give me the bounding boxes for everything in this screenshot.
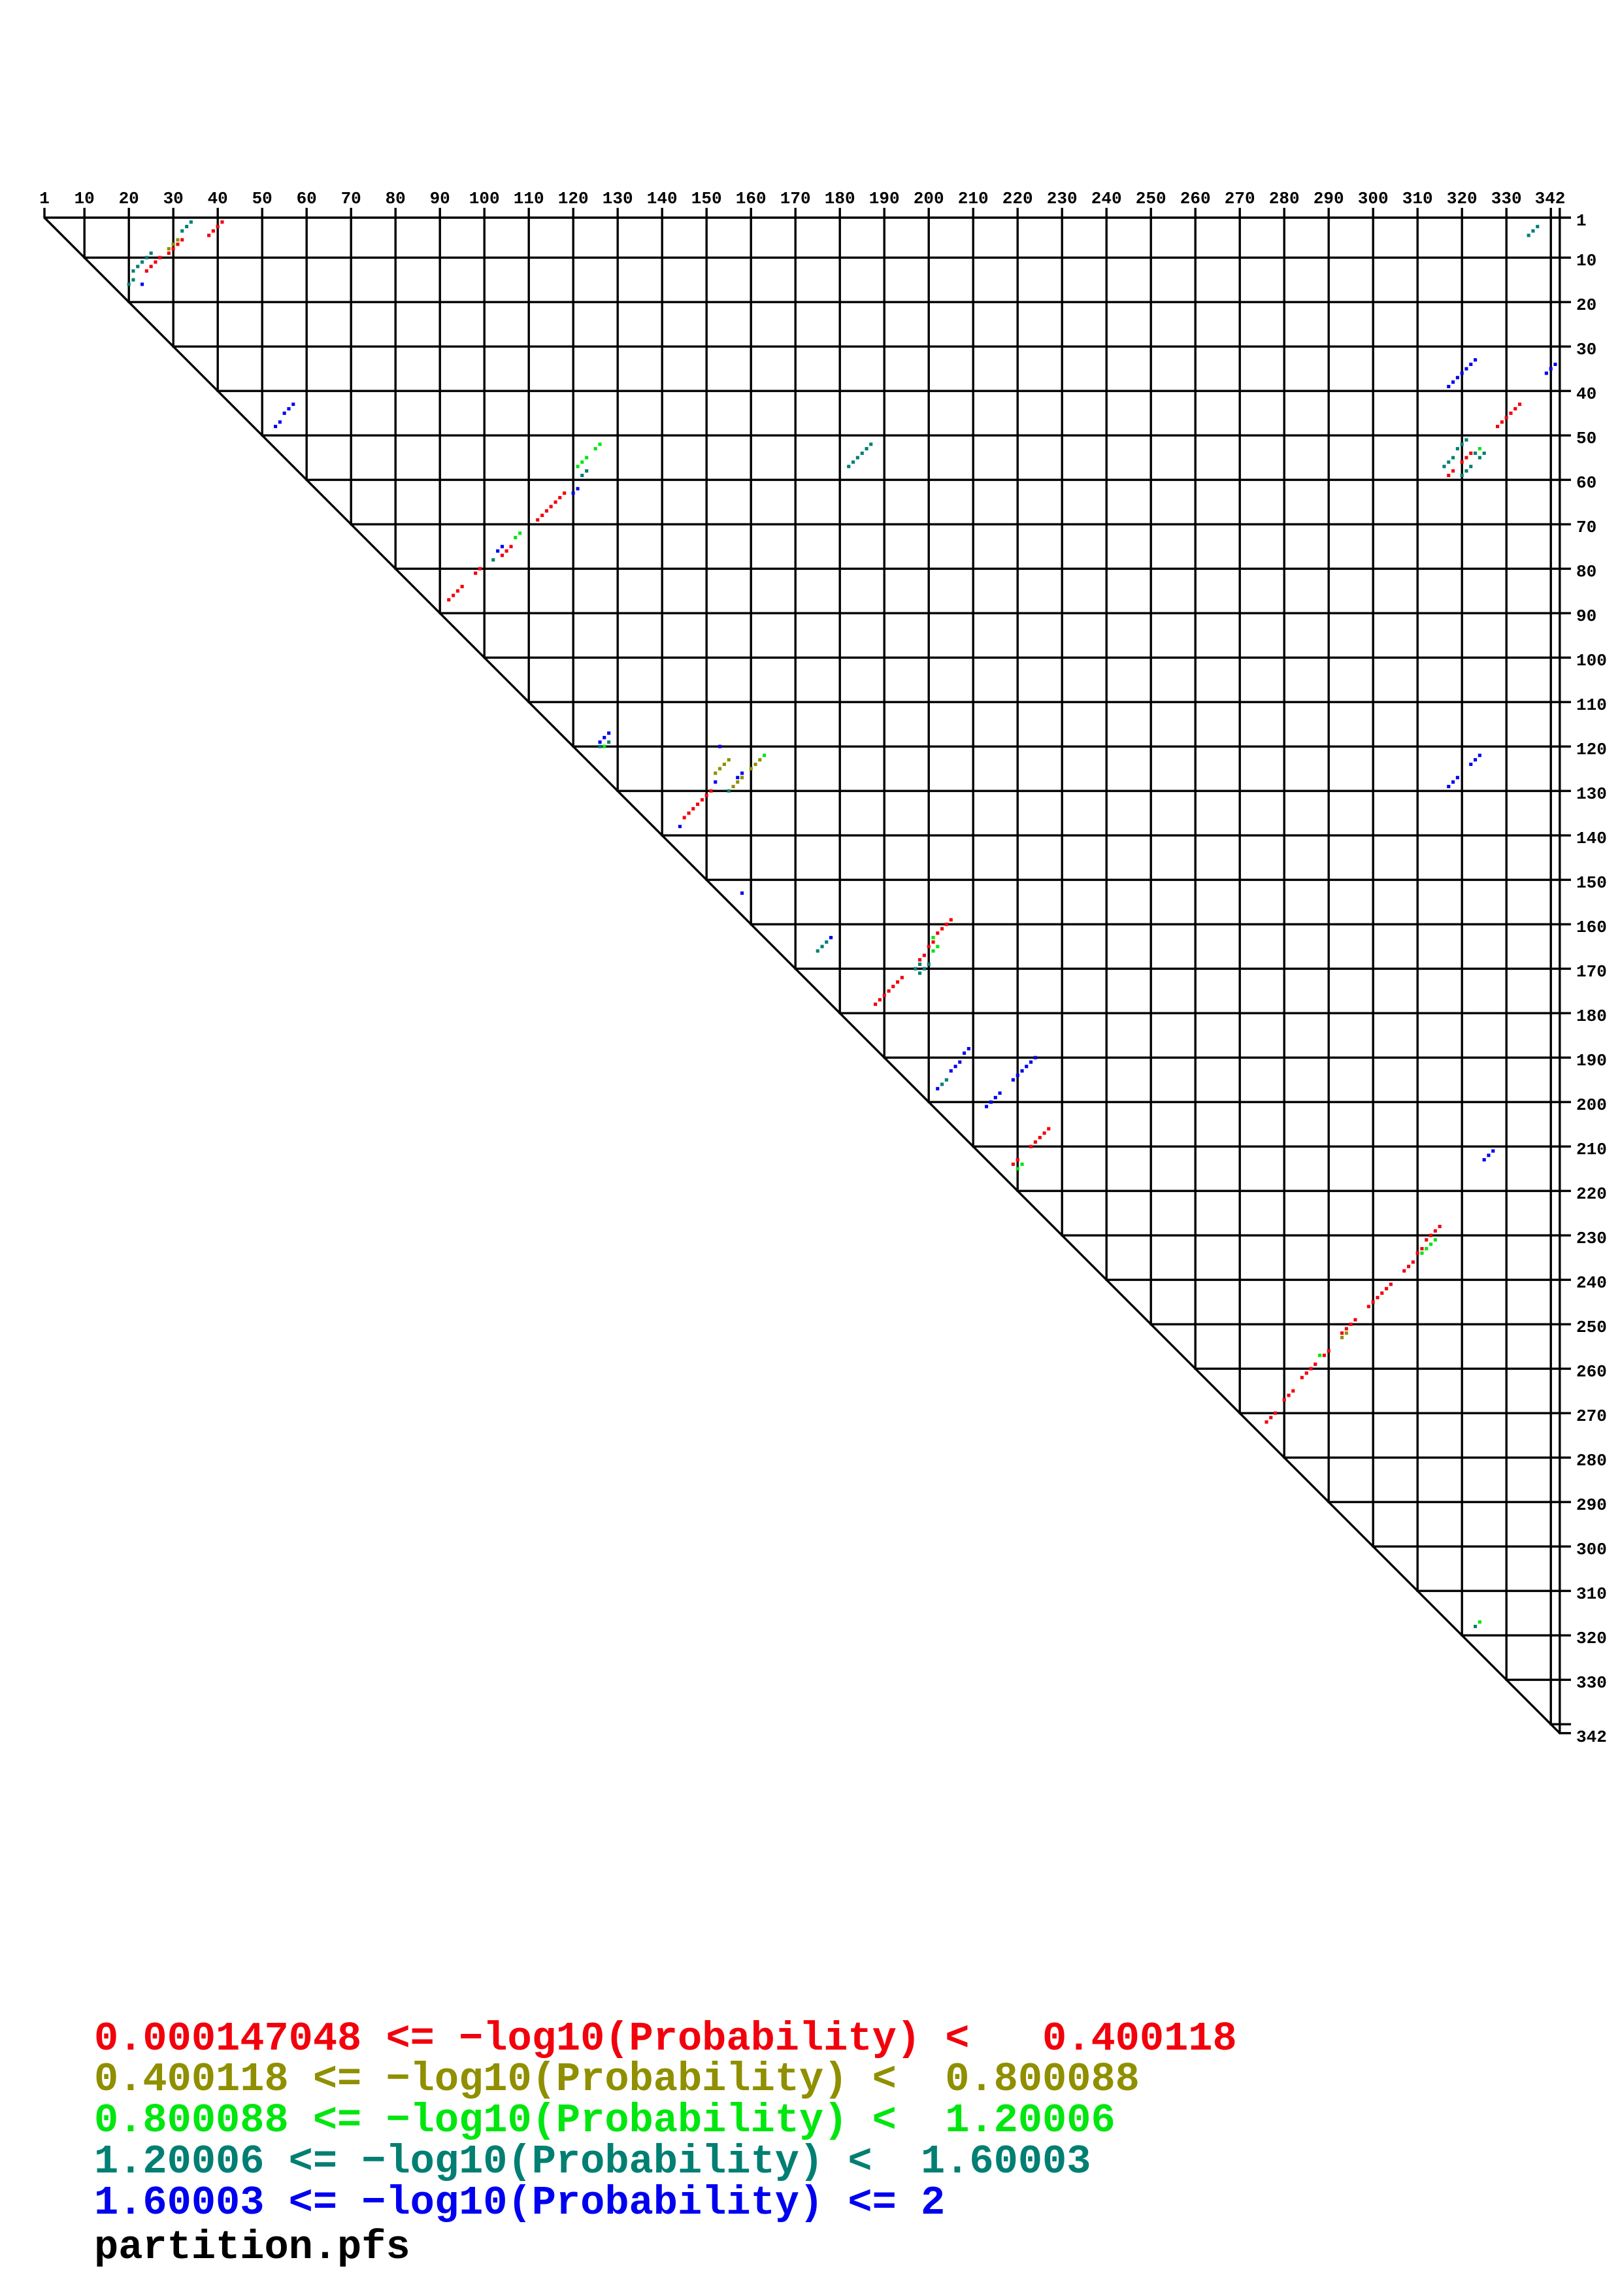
svg-text:310: 310 bbox=[1576, 1584, 1607, 1604]
svg-text:260: 260 bbox=[1576, 1362, 1607, 1382]
svg-text:70: 70 bbox=[341, 189, 361, 208]
svg-text:40: 40 bbox=[1576, 384, 1596, 404]
svg-text:1.60003 <= −log10(Probability): 1.60003 <= −log10(Probability) <= 2 bbox=[94, 2180, 945, 2226]
svg-text:50: 50 bbox=[1576, 429, 1596, 448]
svg-text:200: 200 bbox=[914, 189, 944, 208]
svg-text:310: 310 bbox=[1402, 189, 1433, 208]
svg-text:30: 30 bbox=[163, 189, 184, 208]
svg-text:320: 320 bbox=[1447, 189, 1478, 208]
svg-text:200: 200 bbox=[1576, 1095, 1607, 1115]
svg-text:10: 10 bbox=[1576, 251, 1596, 271]
svg-text:120: 120 bbox=[558, 189, 589, 208]
svg-text:1.20006 <= −log10(Probability): 1.20006 <= −log10(Probability) < 1.60003 bbox=[94, 2138, 1091, 2185]
svg-text:150: 150 bbox=[691, 189, 722, 208]
svg-text:280: 280 bbox=[1576, 1451, 1607, 1471]
svg-text:290: 290 bbox=[1576, 1495, 1607, 1515]
svg-text:110: 110 bbox=[514, 189, 544, 208]
svg-text:30: 30 bbox=[1576, 340, 1596, 359]
svg-text:0.400118 <= −log10(Probability: 0.400118 <= −log10(Probability) < 0.8000… bbox=[94, 2056, 1140, 2103]
svg-text:110: 110 bbox=[1576, 695, 1607, 715]
svg-text:320: 320 bbox=[1576, 1629, 1607, 1648]
svg-text:342: 342 bbox=[1535, 189, 1566, 208]
svg-text:130: 130 bbox=[1576, 784, 1607, 804]
svg-text:170: 170 bbox=[1576, 962, 1607, 982]
svg-text:160: 160 bbox=[1576, 918, 1607, 937]
svg-text:210: 210 bbox=[958, 189, 989, 208]
svg-text:80: 80 bbox=[386, 189, 406, 208]
svg-text:280: 280 bbox=[1269, 189, 1300, 208]
svg-text:220: 220 bbox=[1576, 1184, 1607, 1204]
svg-text:100: 100 bbox=[1576, 651, 1607, 671]
svg-text:60: 60 bbox=[1576, 473, 1596, 493]
svg-text:140: 140 bbox=[1576, 829, 1607, 848]
svg-text:50: 50 bbox=[252, 189, 273, 208]
svg-text:1: 1 bbox=[1576, 211, 1587, 231]
svg-text:270: 270 bbox=[1576, 1406, 1607, 1426]
svg-text:230: 230 bbox=[1576, 1229, 1607, 1248]
svg-text:190: 190 bbox=[869, 189, 900, 208]
svg-text:250: 250 bbox=[1576, 1318, 1607, 1337]
svg-text:120: 120 bbox=[1576, 740, 1607, 759]
svg-text:210: 210 bbox=[1576, 1140, 1607, 1159]
svg-text:300: 300 bbox=[1358, 189, 1389, 208]
svg-text:10: 10 bbox=[74, 189, 95, 208]
svg-text:240: 240 bbox=[1091, 189, 1122, 208]
svg-text:330: 330 bbox=[1576, 1673, 1607, 1693]
svg-text:70: 70 bbox=[1576, 518, 1596, 537]
svg-text:290: 290 bbox=[1314, 189, 1344, 208]
svg-text:190: 190 bbox=[1576, 1051, 1607, 1071]
svg-text:100: 100 bbox=[469, 189, 500, 208]
svg-text:90: 90 bbox=[1576, 607, 1596, 626]
svg-text:0.000147048 <= −log10(Probabil: 0.000147048 <= −log10(Probability) < 0.4… bbox=[94, 2016, 1237, 2062]
svg-text:342: 342 bbox=[1576, 1727, 1607, 1747]
svg-text:260: 260 bbox=[1180, 189, 1211, 208]
svg-text:330: 330 bbox=[1491, 189, 1522, 208]
svg-text:220: 220 bbox=[1002, 189, 1033, 208]
svg-text:240: 240 bbox=[1576, 1273, 1607, 1293]
svg-text:90: 90 bbox=[430, 189, 450, 208]
svg-text:180: 180 bbox=[1576, 1007, 1607, 1026]
svg-text:170: 170 bbox=[780, 189, 811, 208]
svg-text:140: 140 bbox=[647, 189, 678, 208]
svg-text:160: 160 bbox=[736, 189, 767, 208]
svg-text:130: 130 bbox=[603, 189, 633, 208]
svg-text:0.800088 <= −log10(Probability: 0.800088 <= −log10(Probability) < 1.2000… bbox=[94, 2097, 1116, 2144]
svg-text:20: 20 bbox=[1576, 295, 1596, 315]
svg-text:partition.pfs: partition.pfs bbox=[94, 2224, 410, 2271]
svg-text:230: 230 bbox=[1047, 189, 1078, 208]
svg-text:180: 180 bbox=[825, 189, 855, 208]
svg-text:300: 300 bbox=[1576, 1540, 1607, 1559]
svg-text:150: 150 bbox=[1576, 873, 1607, 893]
svg-text:40: 40 bbox=[208, 189, 228, 208]
svg-text:1: 1 bbox=[39, 189, 50, 208]
svg-text:60: 60 bbox=[297, 189, 317, 208]
svg-text:20: 20 bbox=[119, 189, 139, 208]
svg-text:270: 270 bbox=[1225, 189, 1255, 208]
svg-text:250: 250 bbox=[1136, 189, 1166, 208]
svg-text:80: 80 bbox=[1576, 562, 1596, 582]
